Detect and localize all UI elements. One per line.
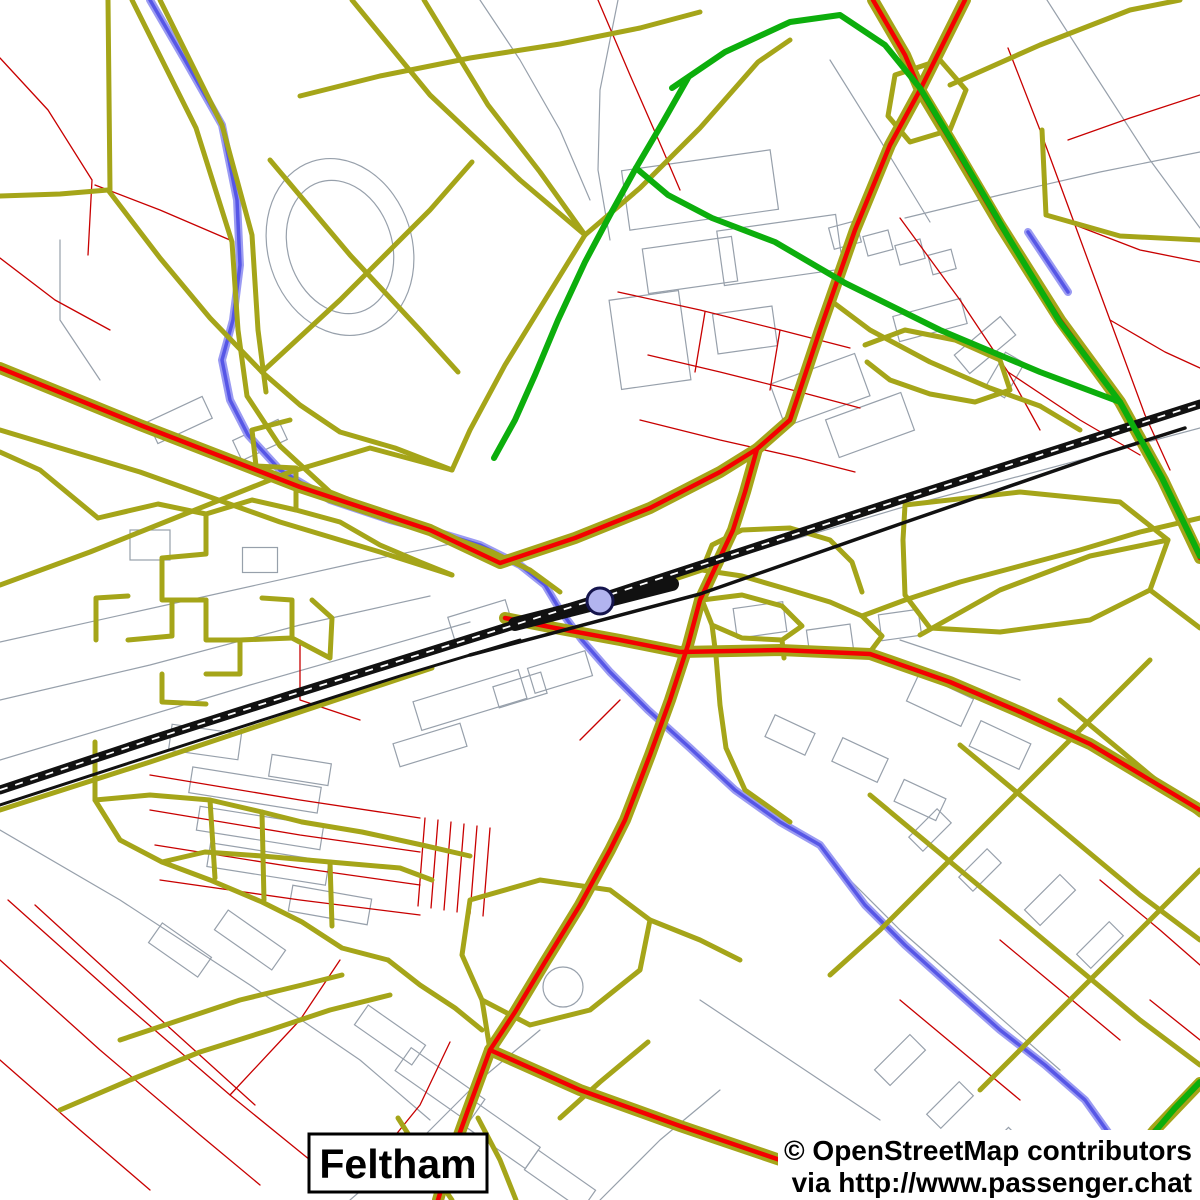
- map-viewport: © OpenStreetMap contributors via http://…: [0, 0, 1200, 1200]
- place-label-box: Feltham: [309, 1134, 487, 1192]
- attribution: © OpenStreetMap contributors via http://…: [778, 1130, 1200, 1200]
- attribution-line-2: via http://www.passenger.chat: [792, 1167, 1192, 1198]
- map-line: [330, 862, 332, 926]
- map-canvas: © OpenStreetMap contributors via http://…: [0, 0, 1200, 1200]
- map-line: [262, 812, 264, 900]
- map-line: [108, 0, 110, 190]
- station-marker: [587, 588, 613, 614]
- attribution-line-1: © OpenStreetMap contributors: [784, 1135, 1192, 1166]
- place-label: Feltham: [319, 1141, 476, 1187]
